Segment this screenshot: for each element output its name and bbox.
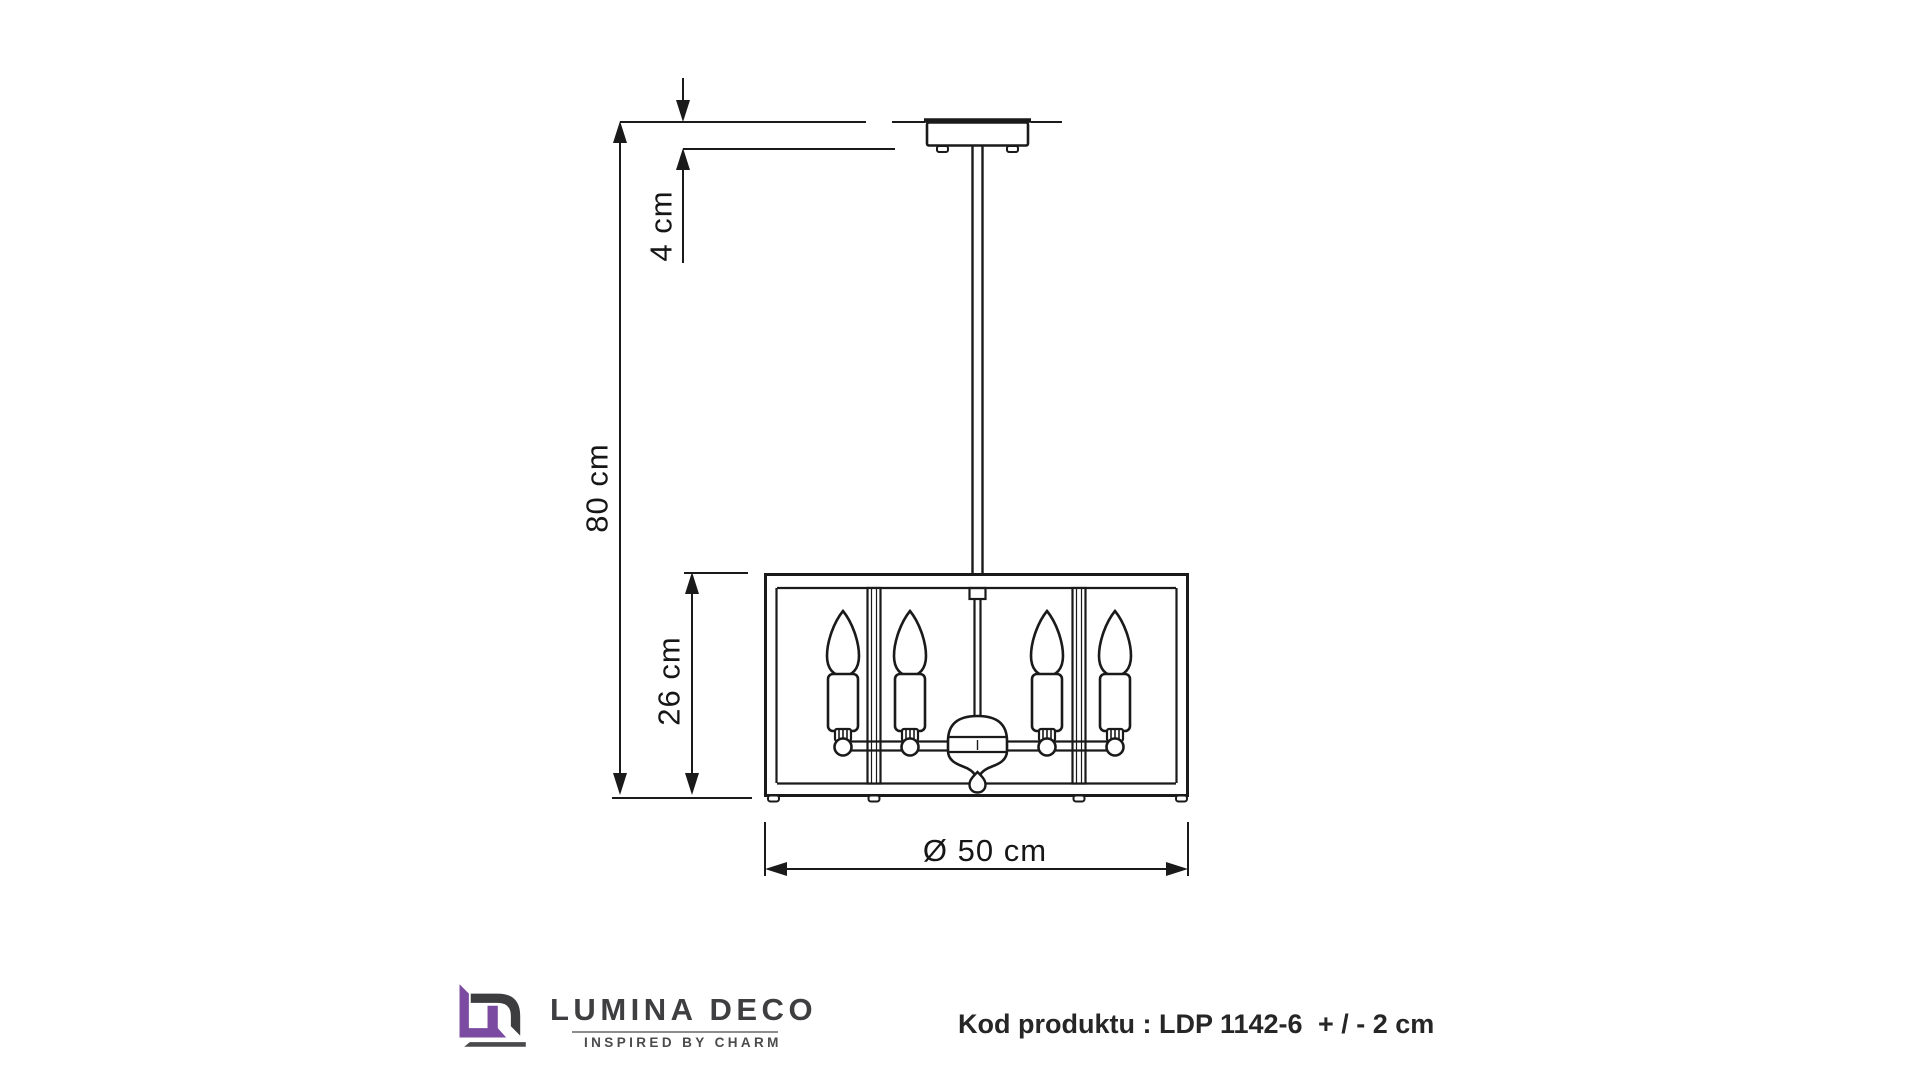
finial-ball: [970, 772, 986, 793]
brand-logo: LUMINA DECO INSPIRED BY CHARM: [453, 972, 817, 1060]
arrow-down-icon: [676, 100, 690, 122]
ceiling-plate: [924, 121, 1031, 153]
candle-bulb: [1099, 611, 1131, 756]
arrow-down-icon: [685, 773, 699, 795]
brand-text: LUMINA DECO INSPIRED BY CHARM: [550, 994, 817, 1050]
arrow-up-icon: [676, 148, 690, 170]
dimension-diameter: Ø 50 cm: [765, 822, 1188, 876]
dim-label-80cm: 80 cm: [580, 443, 615, 532]
dimension-total-height: 80 cm: [580, 121, 628, 795]
product-code-text: Kod produktu : LDP 1142-6: [958, 1008, 1303, 1040]
frame-post: [1073, 588, 1086, 784]
dim-label-26cm: 26 cm: [652, 636, 687, 725]
arrow-up-icon: [685, 572, 699, 594]
arrow-down-icon: [613, 773, 627, 795]
logo-divider: [572, 1031, 778, 1033]
candle-bulb: [827, 611, 859, 756]
technical-drawing: 80 cm 4 cm 26 cm Ø 50 cm: [0, 0, 1920, 940]
arrow-right-icon: [1166, 862, 1188, 876]
arrow-left-icon: [765, 862, 787, 876]
frame-foot: [768, 796, 779, 802]
frame-foot: [1176, 796, 1187, 802]
hanging-rod: [973, 146, 983, 576]
brand-wordmark: LUMINA DECO: [550, 994, 817, 1025]
candle-bulb: [1031, 611, 1063, 756]
frame-foot: [1074, 796, 1085, 802]
mount-screw: [1007, 146, 1018, 152]
dimension-shade-height: 26 cm: [652, 572, 700, 795]
brand-tagline: INSPIRED BY CHARM: [584, 1036, 817, 1050]
candle-bulb: [894, 611, 926, 756]
arrow-up-icon: [613, 121, 627, 143]
frame-post: [868, 588, 881, 784]
dim-label-4cm: 4 cm: [644, 190, 679, 261]
frame-foot: [869, 796, 880, 802]
center-hub: [948, 716, 1007, 793]
tolerance-text: + / - 2 cm: [1318, 1008, 1434, 1040]
center-stem: [970, 588, 986, 720]
lumina-deco-mark-icon: [453, 972, 537, 1060]
dim-label-diameter: Ø 50 cm: [923, 833, 1047, 868]
page-canvas: 80 cm 4 cm 26 cm Ø 50 cm: [0, 0, 1920, 1080]
dimension-canopy-offset: 4 cm: [644, 78, 691, 263]
mount-screw: [937, 146, 948, 152]
